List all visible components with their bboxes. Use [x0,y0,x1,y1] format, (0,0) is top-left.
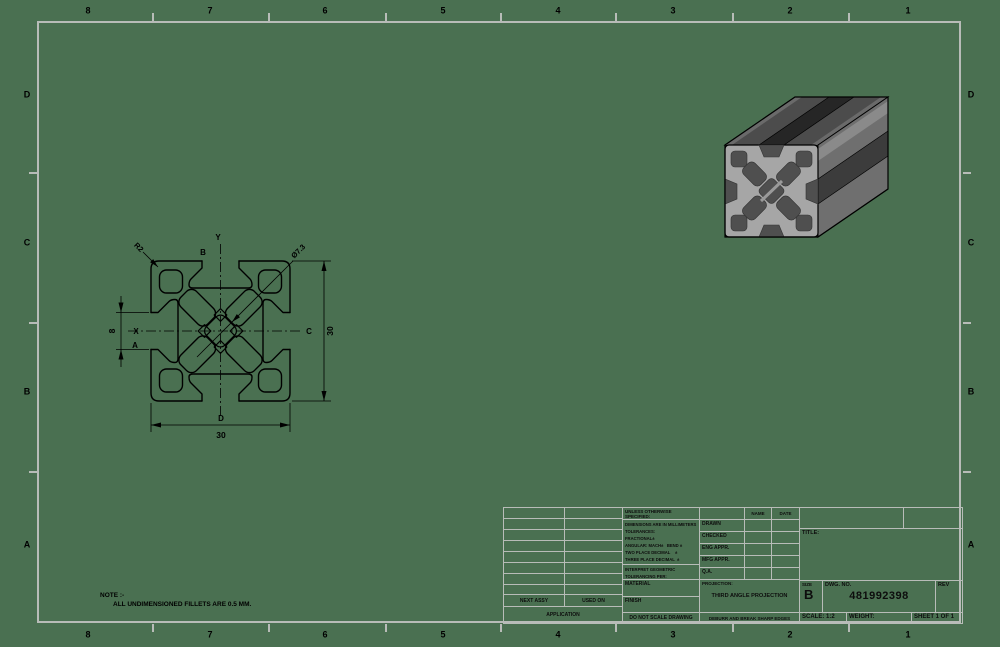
zone-label: B [968,388,975,397]
deburr-cell: DEBURR AND BREAK SHARP EDGES [699,612,800,624]
zone-label: 1 [905,631,910,640]
drawing-note: NOTE :- ALL UNDIMENSIONED FILLETS ARE 0.… [100,591,251,609]
weight-cell: WEIGHT: [846,612,912,624]
zone-label: 5 [440,7,445,16]
zone-tick [29,471,37,473]
blank-strip-cell [799,507,904,529]
label-b: B [200,248,206,257]
isometric-view [695,55,910,245]
dwg-no-cell: DWG. NO. 481992398 [822,580,936,613]
rev-cell: REV [935,580,963,613]
zone-label: A [968,541,975,550]
zone-tick [963,322,971,324]
dim-slot-text: 8 [107,328,117,333]
zone-label: 3 [670,7,675,16]
finish-cell: FINISH [622,596,700,613]
zone-label: 6 [322,7,327,16]
zone-label: 8 [85,7,90,16]
zone-tick [848,624,850,632]
label-a: A [132,341,138,350]
do-not-scale-cell: DO NOT SCALE DRAWING [622,612,700,624]
title-block: NEXT ASSY USED ON APPLICATION UNLESS OTH… [503,507,963,624]
zone-tick [268,624,270,632]
zone-label: 5 [440,631,445,640]
tolerances-cell: DIMENSIONS ARE IN MILLIMETERS TOLERANCES… [622,519,700,565]
size-cell: SIZE B [799,580,823,613]
zone-label: 7 [207,631,212,640]
zone-tick [385,624,387,632]
blank-strip-cell-2 [903,507,963,529]
zone-tick [500,13,502,21]
zone-tick [500,624,502,632]
zone-label: 8 [85,631,90,640]
diameter-callout-text: Ø7.3 [289,242,307,260]
axis-x-label: X [133,327,139,336]
dim-height-text: 30 [325,326,335,336]
zone-tick [29,322,37,324]
projection-label: PROJECTION: [702,581,733,586]
zone-tick [29,172,37,174]
scale-cell: SCALE: 1:2 [799,612,847,624]
zone-tick [615,13,617,21]
zone-label: 1 [905,7,910,16]
zone-tick [615,624,617,632]
zone-label: C [968,239,975,248]
projection-value: THIRD ANGLE PROJECTION [712,593,788,599]
zone-label: D [968,91,975,100]
title-cell: TITLE: [799,528,963,581]
zone-label: 4 [555,7,560,16]
zone-tick [152,624,154,632]
zone-label: 4 [555,631,560,640]
sheet-of-cell: SHEET 1 OF 1 [911,612,963,624]
application-table-col1 [503,507,565,595]
zone-label: 6 [322,631,327,640]
note-line-2: ALL UNDIMENSIONED FILLETS ARE 0.5 MM. [113,600,251,609]
zone-tick [152,13,154,21]
zone-label: 2 [787,631,792,640]
dwg-no-label: DWG. NO. [825,582,851,588]
cross-section-view: 30 30 8 R2 Ø7.3 Y B X A C D [85,222,350,457]
zone-tick [385,13,387,21]
axis-y-label: Y [215,233,221,242]
zone-label: 2 [787,7,792,16]
zone-tick [268,13,270,21]
zone-tick [848,13,850,21]
interpret-cell: INTERPRET GEOMETRIC TOLERANCING PER: [622,564,700,580]
zone-tick [732,13,734,21]
zone-tick [963,172,971,174]
dwg-no-value: 481992398 [825,590,933,602]
size-value: B [804,588,820,601]
projection-cell: PROJECTION: THIRD ANGLE PROJECTION [699,579,800,613]
drawing-sheet: 8 7 6 5 4 3 2 1 8 7 6 5 4 3 2 1 D C B A … [0,0,1000,647]
zone-label: A [24,541,31,550]
label-d: D [218,414,224,423]
zone-label: 7 [207,7,212,16]
application-table-col2 [564,507,623,595]
zone-label: 3 [670,631,675,640]
label-c: C [306,327,312,336]
application-cell: APPLICATION [503,606,623,624]
material-cell: MATERIAL [622,579,700,597]
dim-width-text: 30 [216,430,226,440]
zone-label: D [24,91,31,100]
zone-tick [732,624,734,632]
zone-label: C [24,239,31,248]
zone-label: B [24,388,31,397]
zone-tick [963,471,971,473]
dimension-lines [116,252,331,432]
note-line-1: NOTE :- [100,591,251,600]
